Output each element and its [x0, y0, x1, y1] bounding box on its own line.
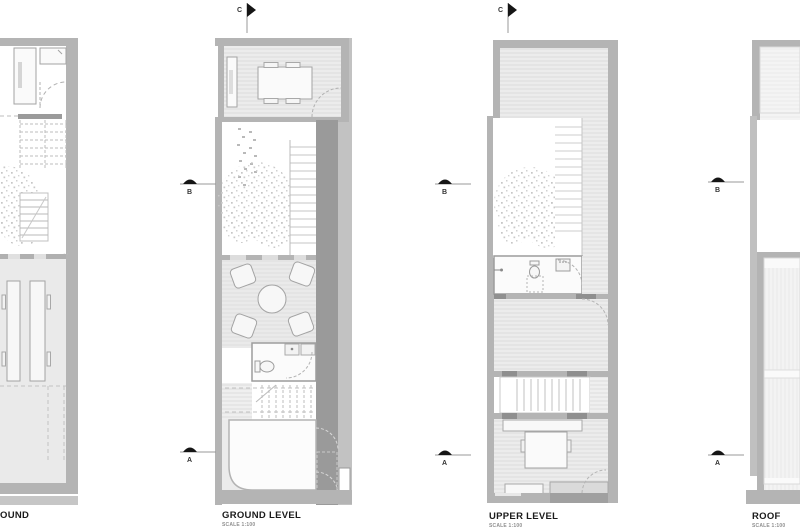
plan-title-ground-level: GROUND LEVEL [222, 510, 301, 521]
plan-scale-upper-level: SCALE 1:100 [489, 523, 522, 529]
upper-level-drawing [486, 38, 620, 506]
section-arrow-up-icon [183, 180, 197, 185]
section-marker-b-upper: B [433, 172, 473, 198]
section-letter: C [237, 7, 242, 14]
side-passage [316, 120, 338, 505]
section-letter: B [187, 189, 192, 196]
section-letter: C [498, 7, 503, 14]
dining-table [258, 67, 312, 99]
section-arrow-up-icon [438, 180, 452, 185]
section-arrow-up-icon [183, 448, 197, 453]
section-marker-b-ground: B [178, 172, 218, 198]
section-arrow-up-icon [438, 451, 452, 456]
floor-plan-ground-level [214, 38, 354, 506]
bed [525, 432, 567, 468]
plan-title-roof: ROOF [752, 511, 781, 522]
parapet-wall [750, 116, 757, 476]
section-letter: B [442, 189, 447, 196]
toilet [260, 361, 274, 372]
section-arrow-right-icon [508, 3, 517, 17]
floor-plan-lower-ground [0, 38, 80, 508]
section-letter: B [715, 187, 720, 194]
section-marker-a-upper: A [433, 443, 473, 469]
plan-title-lower-ground: OUND [0, 510, 29, 521]
plan-scale-roof: SCALE 1:100 [752, 523, 785, 529]
floor-plan-upper-level [486, 38, 620, 506]
section-arrow-up-icon [711, 451, 725, 456]
section-letter: A [715, 460, 720, 467]
section-marker-c-ground: C [236, 0, 260, 36]
section-letter: A [187, 457, 192, 464]
section-arrow-up-icon [711, 178, 725, 183]
work-table [7, 281, 20, 381]
section-marker-c-upper: C [497, 0, 521, 36]
section-arrow-right-icon [247, 3, 256, 17]
plan-title-upper-level: UPPER LEVEL [489, 511, 558, 522]
coffee-table [258, 285, 286, 313]
floor-plan-roof [746, 38, 800, 508]
lower-ground-drawing [0, 38, 80, 508]
section-marker-a-roof: A [706, 443, 746, 469]
plan-scale-ground-level: SCALE 1:100 [222, 522, 255, 528]
entry-court [229, 420, 316, 490]
section-letter: A [442, 460, 447, 467]
section-marker-a-ground: A [178, 440, 218, 466]
ground-level-drawing [214, 38, 354, 506]
roof-joint-band [764, 370, 800, 378]
roof-drawing [746, 38, 800, 508]
section-marker-b-roof: B [706, 170, 746, 196]
